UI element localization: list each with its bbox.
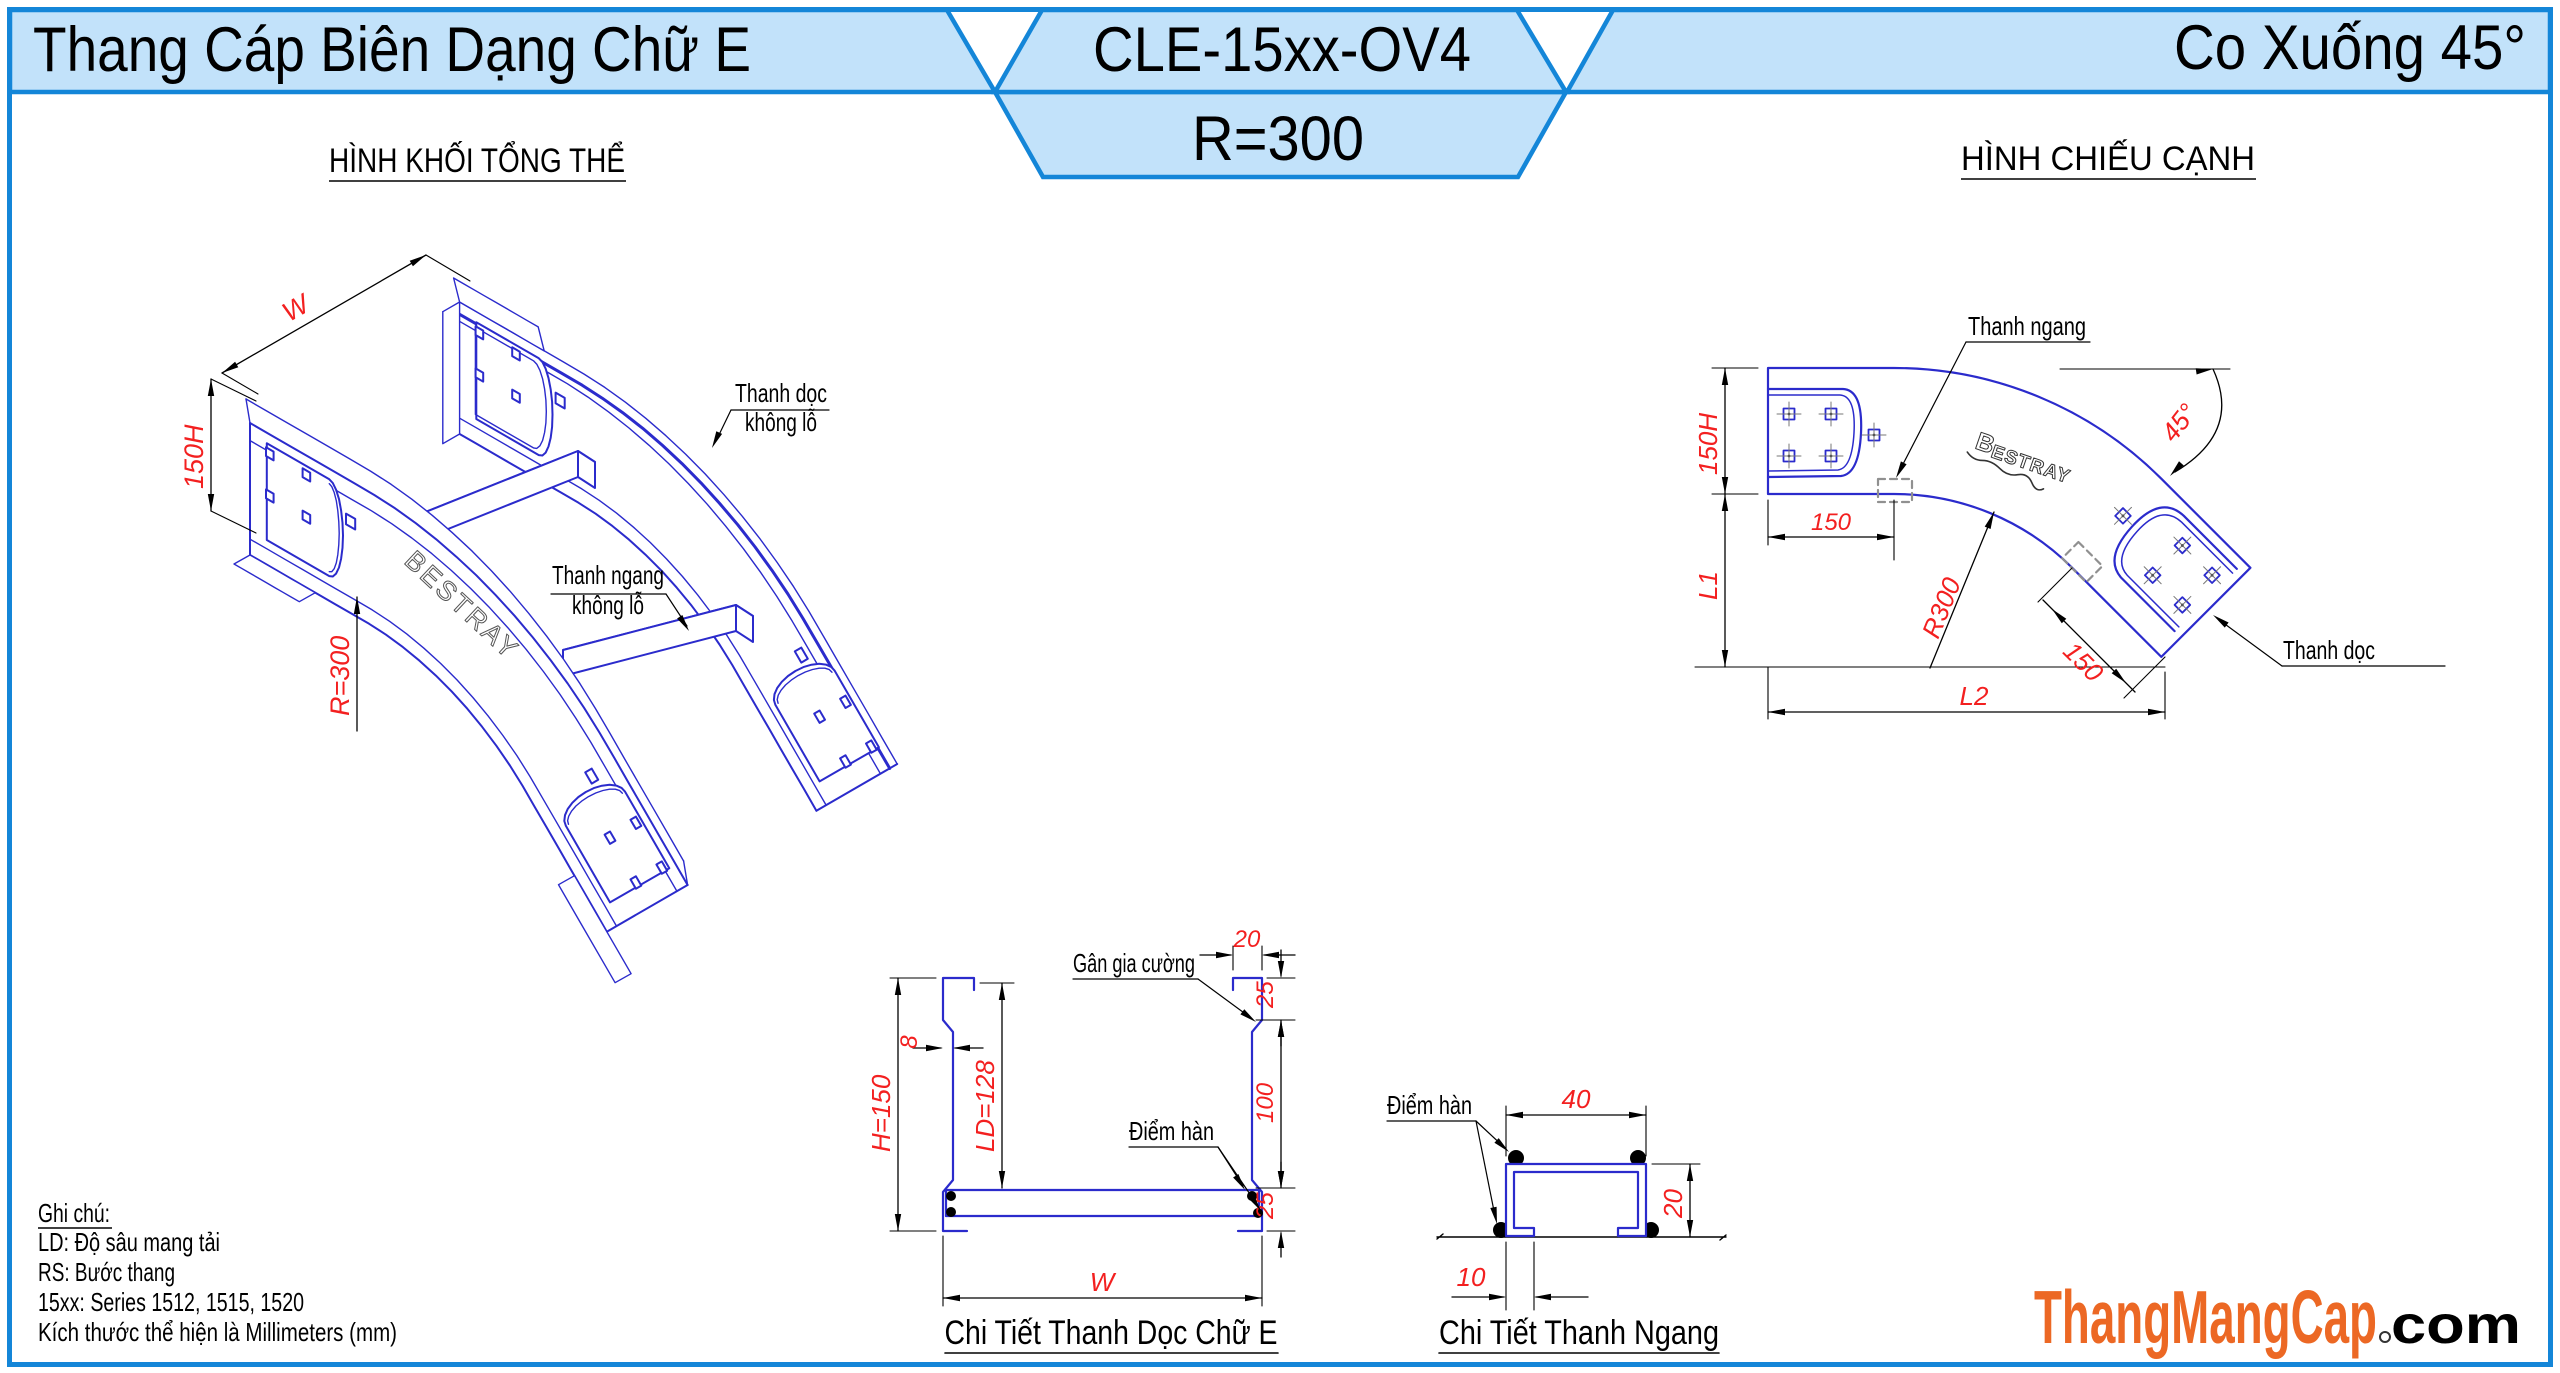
svg-text:Co Xuống 45°: Co Xuống 45° [2174,13,2526,83]
svg-text:20: 20 [1658,1189,1688,1219]
svg-text:15xx: Series 1512, 1515, 1520: 15xx: Series 1512, 1515, 1520 [38,1287,304,1317]
svg-text:CLE-15xx-OV4: CLE-15xx-OV4 [1093,15,1471,85]
svg-text:150H: 150H [1693,413,1723,475]
svg-text:100: 100 [1252,1082,1279,1123]
svg-text:25: 25 [1252,981,1279,1009]
svg-text:Chi Tiết Thanh Ngang: Chi Tiết Thanh Ngang [1439,1314,1719,1352]
svg-text:ThangMangCap: ThangMangCap [2034,1275,2377,1359]
svg-text:R=300: R=300 [325,636,355,716]
svg-text:Thanh ngang: Thanh ngang [552,560,664,590]
svg-text:Thanh dọc: Thanh dọc [2283,635,2375,665]
svg-text:LD: Độ sâu mang tải: LD: Độ sâu mang tải [38,1227,220,1257]
svg-text:40: 40 [1562,1084,1591,1114]
svg-text:com: com [2391,1295,2521,1355]
svg-text:150: 150 [1811,509,1852,536]
svg-text:150H: 150H [179,424,209,489]
svg-text:HÌNH KHỐI TỔNG THỂ: HÌNH KHỐI TỔNG THỂ [329,141,625,180]
svg-text:HÌNH CHIẾU CẠNH: HÌNH CHIẾU CẠNH [1961,140,2255,178]
svg-text:LD=128: LD=128 [970,1060,1000,1152]
svg-text:R=300: R=300 [1192,104,1364,174]
svg-text:Điểm hàn: Điểm hàn [1387,1090,1472,1120]
svg-text:10: 10 [1457,1262,1486,1292]
svg-text:8: 8 [896,1035,923,1049]
svg-text:RS: Bước thang: RS: Bước thang [38,1257,175,1287]
svg-text:L1: L1 [1693,571,1723,600]
svg-text:Thanh dọc: Thanh dọc [735,378,827,408]
svg-text:Gân gia cường: Gân gia cường [1073,948,1195,978]
svg-text:Ghi chú:: Ghi chú: [38,1198,110,1228]
svg-text:L2: L2 [1960,681,1989,711]
svg-text:Chi Tiết Thanh Dọc Chữ E: Chi Tiết Thanh Dọc Chữ E [945,1314,1278,1352]
svg-text:Điểm hàn: Điểm hàn [1129,1116,1214,1146]
svg-text:20: 20 [1233,926,1261,953]
svg-text:W: W [1090,1267,1117,1297]
svg-text:Kích thước thể hiện là Millime: Kích thước thể hiện là Millimeters (mm) [38,1317,397,1347]
svg-text:H=150: H=150 [866,1074,896,1152]
svg-text:không lỗ: không lỗ [745,407,817,437]
svg-text:Thang Cáp Biên Dạng Chữ E: Thang Cáp Biên Dạng Chữ E [33,15,751,85]
svg-text:Thanh ngang: Thanh ngang [1968,311,2086,341]
